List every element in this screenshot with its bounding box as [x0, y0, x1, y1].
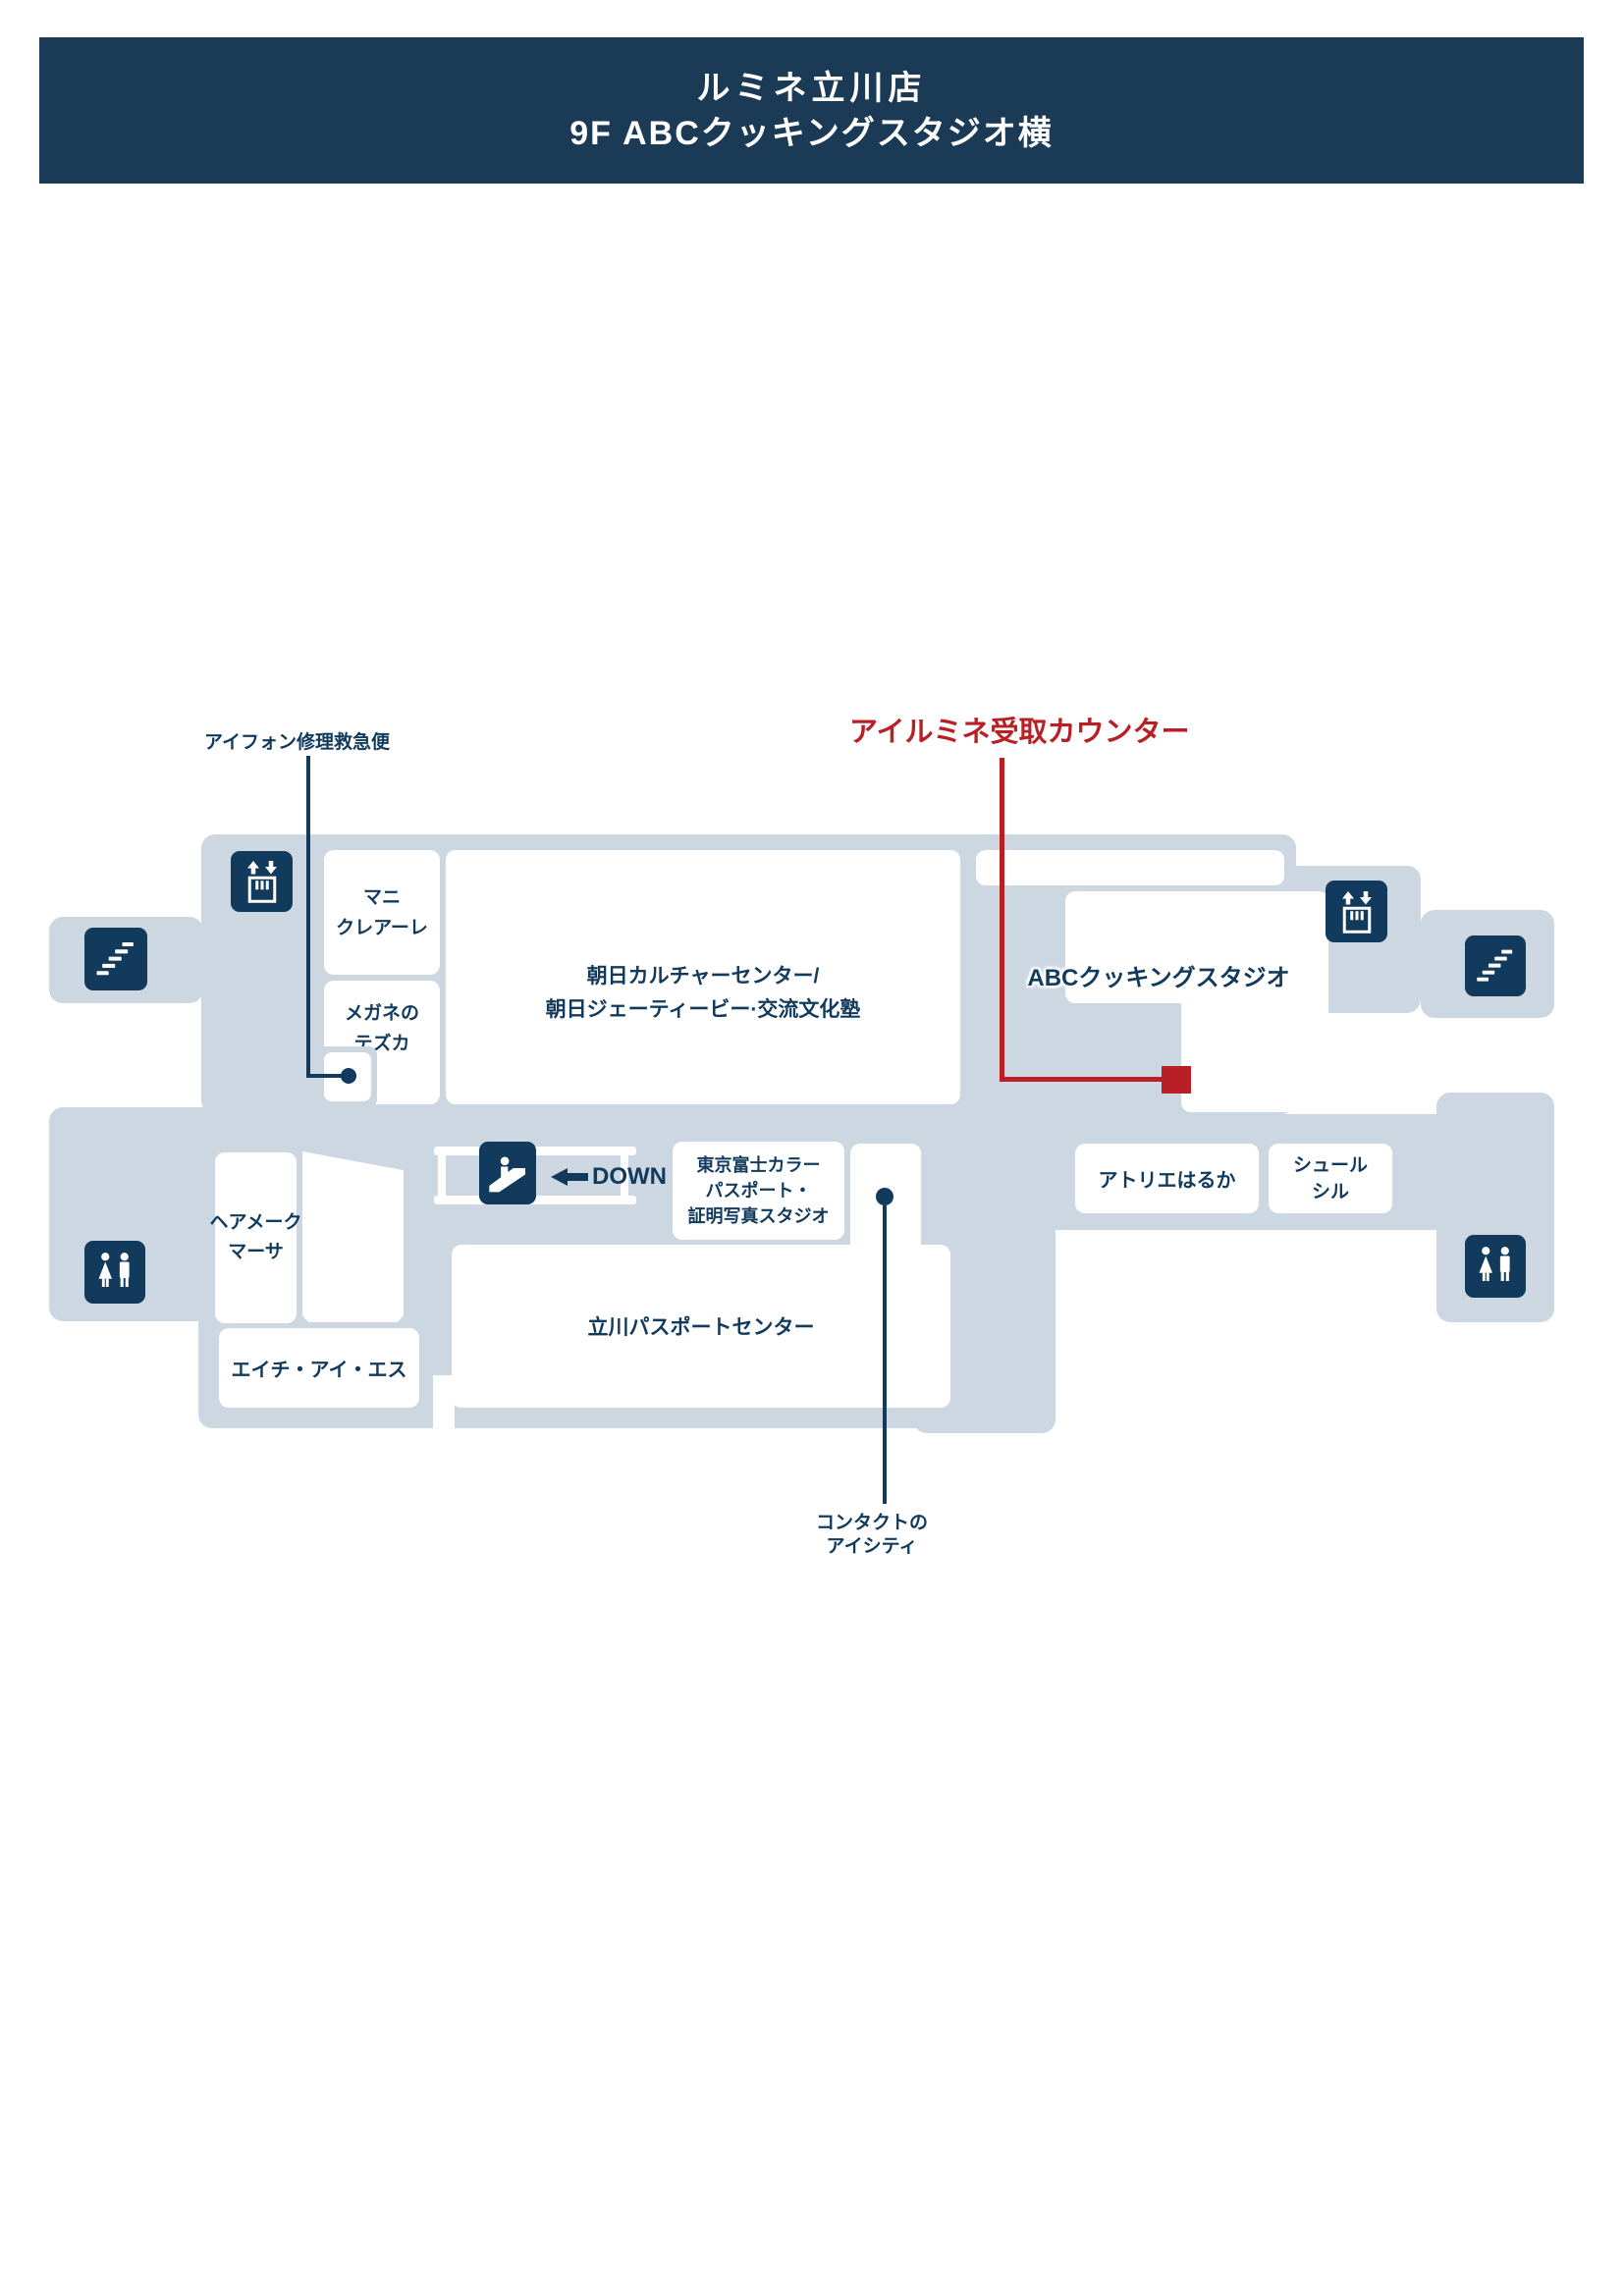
room-label: クレアーレ: [336, 913, 428, 943]
ailumine-pickup-label: アイルミネ受取カウンター: [849, 709, 1190, 750]
leader-line-eyecity-vertical: [883, 1205, 887, 1504]
room-label: 証明写真スタジオ: [688, 1203, 830, 1229]
room-label: ヘアメーク: [209, 1208, 301, 1238]
room-label: パスポート・: [688, 1178, 830, 1203]
room-hair-make-marsa: ヘアメークマーサ: [215, 1152, 297, 1323]
room-label: 朝日ジェーティービー·交流文化塾: [546, 993, 861, 1027]
room-label: メガネの: [345, 998, 419, 1029]
down-direction: DOWN: [551, 1163, 667, 1191]
down-label: DOWN: [592, 1163, 667, 1191]
leader-line-ailumine-vertical: [1000, 758, 1004, 1082]
room-asahi-culture-center: 朝日カルチャーセンター/朝日ジェーティービー·交流文化塾: [446, 850, 960, 1104]
room-label: アトリエはるか: [1099, 1164, 1236, 1193]
eyecity-label-line2: アイシティ: [774, 1535, 970, 1559]
iphone-repair-label: アイフォン修理救急便: [204, 727, 390, 754]
escalator-icon: [479, 1142, 536, 1204]
stairs-icon: [1465, 935, 1526, 996]
room-label: マーサ: [209, 1238, 301, 1267]
room-label: 東京富士カラー: [688, 1152, 830, 1178]
room-tokyo-fuji-color: 東京富士カラーパスポート・証明写真スタジオ: [673, 1142, 844, 1240]
location-dot-icon: [341, 1068, 356, 1084]
room-label: 立川パスポートセンター: [588, 1311, 815, 1341]
floor-map-page: ルミネ立川店 9F ABCクッキングスタジオ横 マニクレアーレ メガネのテズカ …: [0, 0, 1624, 2296]
arrow-left-icon: [551, 1167, 588, 1187]
page-title: ルミネ立川店: [697, 66, 927, 111]
stairs-icon: [84, 928, 147, 990]
header-banner: ルミネ立川店 9F ABCクッキングスタジオ横: [39, 37, 1584, 184]
leader-line-ailumine-horizontal: [1000, 1077, 1166, 1082]
restroom-icon: [84, 1241, 145, 1304]
escalator-track-rung-left: [438, 1148, 446, 1202]
room-unlabeled-top: [976, 850, 1284, 885]
restroom-icon: [1465, 1235, 1526, 1298]
eyecity-label: コンタクトの アイシティ: [774, 1512, 970, 1559]
room-unlabeled-trapezoid: [302, 1151, 404, 1322]
room-his-travel: エイチ・アイ・エス: [219, 1328, 419, 1408]
leader-line-iphone-vertical: [306, 756, 310, 1078]
room-label: エイチ・アイ・エス: [232, 1354, 407, 1382]
room-surle-sil: シュールシル: [1269, 1144, 1392, 1213]
room-mani-creare: マニクレアーレ: [324, 850, 440, 975]
room-label: シュール: [1293, 1152, 1368, 1179]
room-label: マニ: [336, 882, 428, 913]
elevator-icon: [1326, 881, 1387, 942]
room-tachikawa-passport-center: 立川パスポートセンター: [452, 1245, 950, 1408]
eyecity-label-line1: コンタクトの: [774, 1512, 970, 1535]
pickup-square-marker: [1162, 1066, 1191, 1094]
page-subtitle: 9F ABCクッキングスタジオ横: [569, 111, 1054, 156]
room-label: シル: [1293, 1179, 1368, 1205]
room-atelier-haruka: アトリエはるか: [1075, 1144, 1259, 1213]
location-dot-icon: [876, 1188, 893, 1205]
room-abc-cooking-lower: [1181, 891, 1328, 1112]
room-label: 朝日カルチャーセンター/: [546, 960, 861, 993]
room-abc-cooking-label: ABCクッキングスタジオ: [992, 958, 1326, 992]
elevator-icon: [231, 851, 293, 912]
